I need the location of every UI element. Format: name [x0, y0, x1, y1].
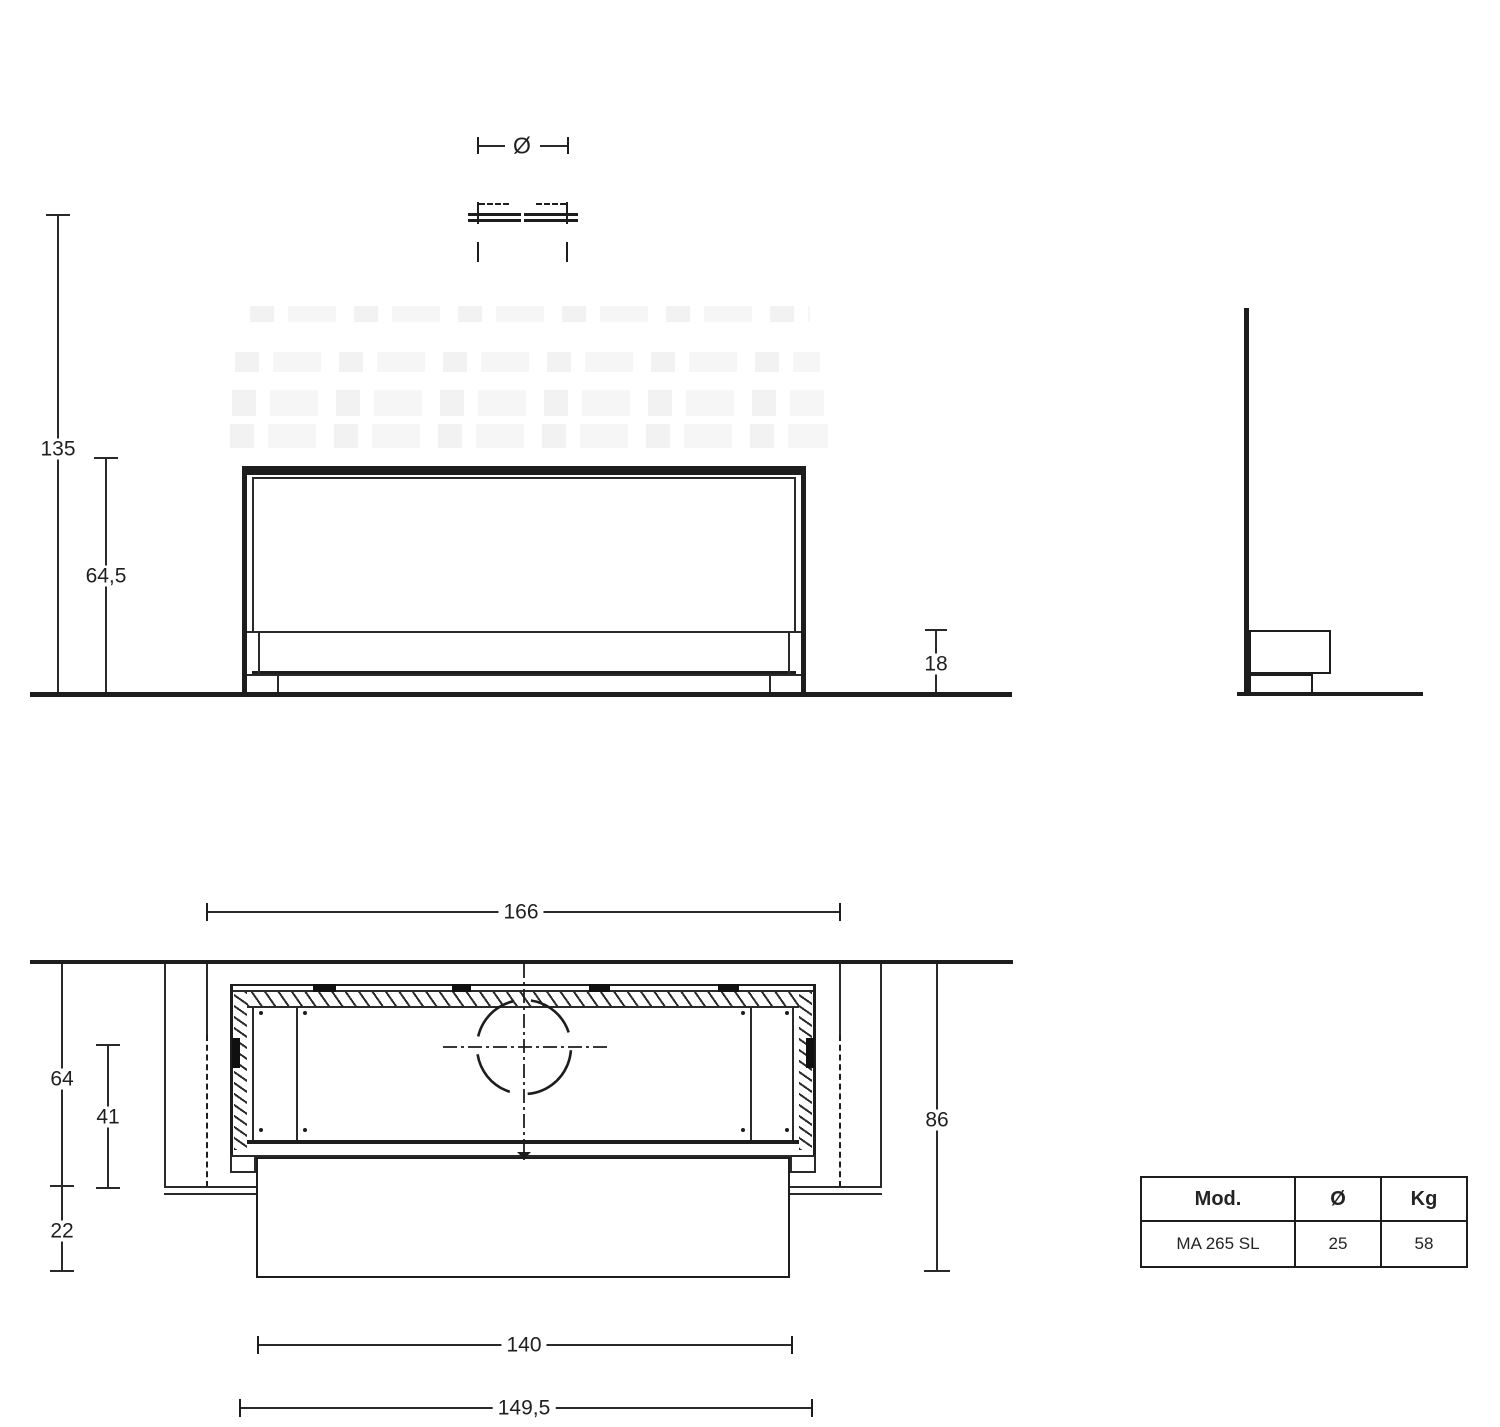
dim-label-166: 166 — [498, 902, 543, 923]
recess-wall-right — [880, 964, 882, 1188]
front-glass-frame-left — [252, 477, 254, 632]
screw-dot — [303, 1128, 307, 1132]
dim-label-41: 41 — [91, 1107, 124, 1128]
corner-bracket — [790, 1171, 816, 1173]
body-right-edge — [813, 984, 816, 1157]
recess-hidden-left-dashed — [206, 1035, 208, 1187]
dim-cap — [50, 1270, 74, 1272]
recess-return-right — [790, 1186, 882, 1188]
spec-table: Mod. Ø Kg MA 265 SL 25 58 — [1140, 1176, 1468, 1268]
screw-dot — [259, 1128, 263, 1132]
front-glass-frame-right — [794, 477, 796, 632]
spec-table-kg-value: 58 — [1382, 1222, 1466, 1266]
dim-label-diameter: Ø — [508, 135, 536, 158]
dim-cap — [924, 1270, 950, 1272]
plinth-top — [247, 674, 801, 676]
dim-tick — [811, 1399, 813, 1417]
insulation-hatch-right — [799, 992, 812, 1150]
screw-dot — [303, 1011, 307, 1015]
side-plinth-box — [1249, 674, 1313, 694]
chamber-divider-right — [750, 1006, 752, 1140]
wall-texture — [235, 352, 820, 372]
screw-dot — [741, 1011, 745, 1015]
recess-return-left — [164, 1193, 262, 1195]
front-box-top — [242, 466, 806, 475]
spec-table-header-diameter: Ø — [1296, 1178, 1382, 1222]
dim-label-22: 22 — [45, 1221, 78, 1242]
dim-label-64-5: 64,5 — [81, 566, 132, 587]
dim-label-135: 135 — [35, 439, 80, 460]
spec-table-header-kg: Kg — [1382, 1178, 1466, 1222]
flue-collar-flange — [468, 219, 521, 222]
mounting-tab — [589, 984, 610, 992]
recess-wall-left — [164, 964, 166, 1188]
side-latch-right — [806, 1038, 814, 1068]
plinth-mark — [277, 674, 279, 693]
wall-line-plan — [30, 960, 1013, 964]
dim-tick — [839, 903, 841, 921]
dim-tick — [567, 137, 569, 154]
floor-line-side — [1237, 692, 1423, 696]
recess-hidden-right — [839, 964, 841, 1035]
dim-label-64: 64 — [45, 1069, 78, 1090]
mounting-tab — [452, 984, 471, 992]
hatch-bottom-line — [247, 1006, 799, 1008]
chamber-divider-left — [296, 1006, 298, 1140]
insulation-hatch-top — [247, 992, 799, 1006]
recess-hidden-left — [206, 964, 208, 1035]
dim-tick — [791, 1336, 793, 1354]
flue-collar-hidden-line — [536, 203, 566, 205]
side-base-box — [1249, 630, 1331, 674]
screw-dot — [785, 1011, 789, 1015]
recess-return-right — [784, 1193, 882, 1195]
dim-cap — [96, 1187, 120, 1189]
dim-line — [540, 145, 567, 147]
recess-return-left — [164, 1186, 256, 1188]
floor-line-front — [30, 692, 1012, 697]
recess-hidden-right-dashed — [839, 1035, 841, 1187]
chamber-left — [252, 1006, 254, 1143]
flue-collar-hidden-line — [479, 203, 509, 205]
front-box-right — [801, 466, 806, 693]
base-band-divider — [258, 631, 260, 674]
spec-table-diameter-value: 25 — [1296, 1222, 1382, 1266]
screw-dot — [259, 1011, 263, 1015]
plinth-mark — [769, 674, 771, 693]
flue-collar-hidden-edge — [566, 242, 568, 262]
base-band-divider — [788, 631, 790, 674]
dim-cap — [50, 1185, 74, 1187]
insulation-hatch-left — [234, 992, 247, 1150]
flue-collar-flange — [468, 213, 521, 216]
screw-dot — [785, 1128, 789, 1132]
base-band-top — [247, 631, 801, 633]
corner-bracket — [230, 1171, 256, 1173]
mounting-tab — [718, 984, 739, 992]
front-bench-outline — [256, 1157, 790, 1278]
technical-drawing-canvas: Ø 135 64,5 18 — [0, 0, 1500, 1427]
front-glass-frame-top — [252, 477, 796, 479]
dim-label-86: 86 — [920, 1110, 953, 1131]
wall-texture — [232, 390, 824, 416]
chamber-bottom — [247, 1140, 799, 1144]
screw-dot — [741, 1128, 745, 1132]
front-box-left — [242, 466, 247, 693]
side-latch-left — [232, 1038, 240, 1068]
wall-texture — [230, 424, 828, 448]
spec-table-header-mod: Mod. — [1142, 1178, 1296, 1222]
dim-line — [479, 145, 505, 147]
wall-texture — [250, 306, 810, 322]
flue-collar-flange — [524, 219, 578, 222]
dim-label-140: 140 — [501, 1335, 546, 1356]
flue-collar-hidden-edge — [477, 242, 479, 262]
chamber-right — [792, 1006, 794, 1143]
dim-label-149-5: 149,5 — [493, 1398, 556, 1419]
dim-label-18: 18 — [919, 654, 952, 675]
flue-collar-flange — [524, 213, 578, 216]
body-left-edge — [230, 984, 233, 1157]
mounting-tab — [313, 984, 336, 992]
spec-table-model-value: MA 265 SL — [1142, 1222, 1296, 1266]
